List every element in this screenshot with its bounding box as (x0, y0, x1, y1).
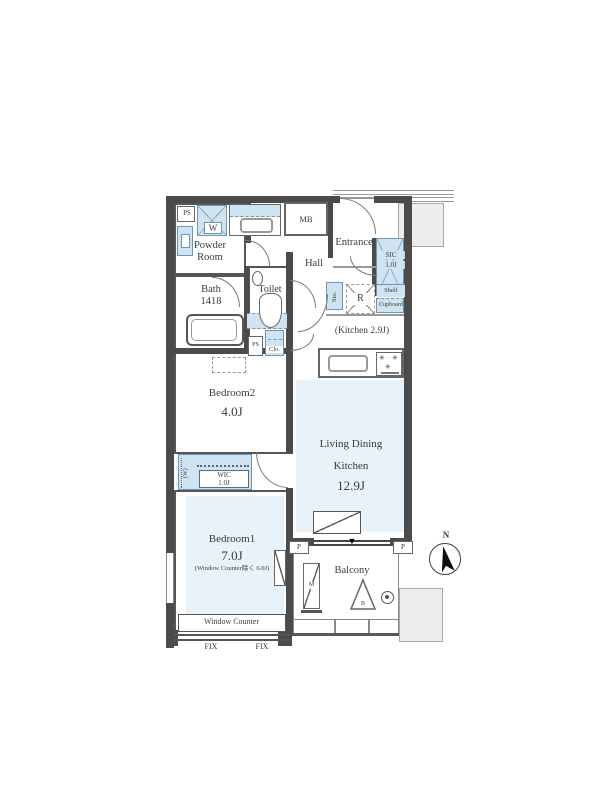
washing-machine-label: W (204, 222, 222, 234)
ldk-line1: Living Dining (296, 438, 406, 451)
bedroom2-name: Bedroom2 (174, 387, 290, 400)
wic-name: WIC (200, 471, 248, 479)
meter-box-label: MB (286, 215, 326, 225)
balcony-m-label: M (304, 582, 319, 589)
powder-room-line2: Room (174, 252, 246, 264)
bedroom1-door-arc (256, 452, 288, 488)
storage-label: Sto. (331, 285, 338, 309)
shoe-closet-sic: SIC 1.0J Shelf (376, 238, 404, 296)
ldk-table (313, 511, 361, 534)
bedroom1-left-window (166, 553, 174, 603)
powder-room-label: Powder Room (174, 240, 246, 264)
bathtub (186, 314, 244, 346)
stove-burner-1: ✳ (379, 354, 385, 362)
vanity-top-band (230, 205, 280, 217)
bath-label: Bath 1418 (176, 284, 246, 308)
common-area-bottom-right (399, 588, 443, 642)
compass-needle-icon (434, 545, 456, 573)
stove-grill (381, 372, 399, 374)
ldk-label: Living Dining Kitchen 12.9J (296, 438, 406, 494)
balcony-m-unit: M (303, 563, 320, 609)
pipe-space-top-label: PS (178, 209, 196, 217)
toilet-bowl (259, 293, 282, 328)
bedroom1-name: Bedroom1 (174, 533, 290, 546)
storage-sto: Sto. (326, 282, 343, 310)
balcony-railing (293, 619, 399, 636)
balcony-door-marker: ▼ (346, 536, 358, 546)
hall-label: Hall (294, 258, 334, 270)
bedroom2-label: Bedroom2 4.0J (174, 387, 290, 420)
bath-size: 1418 (176, 296, 246, 308)
pillar-right-label: P (394, 543, 412, 551)
fix-left-label: FIX (196, 642, 226, 651)
balcony-label: Balcony (320, 565, 384, 577)
bedroom1-note: (Window Counter除く 6.0J) (174, 565, 290, 572)
entrance-inner-door-arc (350, 256, 377, 276)
balcony-b-label: B (359, 601, 367, 608)
pillar-left: P (289, 541, 309, 554)
wic-w-mark: (W) (181, 458, 190, 488)
stove-burner-2: ✳ (392, 354, 398, 362)
stove-burner-3: ✳ (385, 363, 391, 371)
refrigerator-space: R (346, 284, 375, 314)
vanity-counter (229, 204, 281, 236)
wall-hall-entrance (328, 202, 333, 258)
cupboard-label: Cupboard (374, 302, 408, 309)
building-edge-top (333, 190, 454, 195)
bedroom2-hanger (212, 357, 246, 373)
window-counter-label: Window Counter (179, 617, 284, 626)
pillar-right: P (393, 541, 413, 554)
ldk-size: 12.9J (296, 479, 406, 494)
wic-label-box: WIC 1.0J (199, 470, 249, 488)
washing-machine: W (197, 205, 227, 236)
sic-shelf: Shelf (377, 284, 405, 297)
pillar-left-label: P (290, 543, 308, 551)
closet: Clo. (265, 330, 284, 356)
closet-dash (268, 339, 282, 340)
balcony-m-base (301, 610, 322, 613)
floor-plan: PS W MB SIC 1.0J Shelf Sto. R Cupboard P… (0, 0, 600, 800)
pipe-space-mid-label: PS (249, 342, 262, 349)
bedroom1-size: 7.0J (174, 549, 290, 564)
balcony-faucet (381, 591, 394, 604)
meter-box: MB (284, 202, 328, 236)
window-counter-strip: Window Counter (178, 614, 286, 632)
stove: ✳ ✳ ✳ (376, 352, 402, 376)
ldk-line2: Kitchen (296, 460, 406, 473)
powder-door-arc (246, 240, 270, 266)
wic-size: 1.0J (200, 479, 248, 487)
sic-name: SIC (377, 251, 405, 259)
kitchen-sink (328, 355, 368, 372)
bedroom1-label: Bedroom1 7.0J (Window Counter除く 6.0J) (174, 533, 290, 572)
fix-right-label: FIX (247, 642, 277, 651)
bedroom2-door-arc (290, 334, 314, 351)
railing-divider-1 (334, 620, 336, 633)
sic-size: 1.0J (377, 261, 405, 269)
toilet-label: Toilet (250, 284, 290, 296)
kitchen-label: (Kitchen 2.9J) (318, 326, 406, 337)
entrance-label: Entrance (330, 237, 378, 249)
balcony-faucet-dot (385, 595, 389, 599)
closet-label: Clo. (266, 346, 283, 353)
pipe-space-mid: PS (248, 336, 263, 356)
bath-name: Bath (176, 284, 246, 296)
building-edge-top-right (412, 197, 454, 202)
pipe-space-top: PS (177, 206, 195, 222)
wic-hanger-pipe (197, 465, 249, 467)
bedroom2-size: 4.0J (174, 405, 290, 420)
refrigerator-label: R (354, 293, 367, 305)
bathtub-inner (191, 319, 237, 341)
kitchen-counter: ✳ ✳ ✳ (318, 348, 404, 378)
wic-box: (W) WIC 1.0J (178, 454, 252, 490)
cupboard: Cupboard (376, 298, 404, 313)
line-kitchen-top (326, 314, 404, 316)
compass-north-label: N (437, 530, 455, 540)
powder-room-line1: Powder (174, 240, 246, 252)
vanity-sink (240, 218, 273, 233)
fix-window-lines (174, 634, 290, 641)
railing-divider-2 (368, 620, 370, 633)
entrance-door-arc (340, 198, 376, 234)
